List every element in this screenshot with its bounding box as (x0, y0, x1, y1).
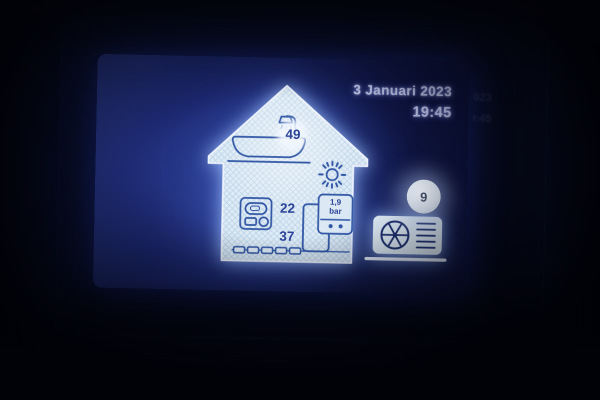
photo-of-device: 3 Januari 2023 19:45 49 22 37 1,9 bar 9 … (0, 0, 600, 400)
flow-temperature: 37 (272, 228, 302, 244)
heat-pump-icon (364, 215, 447, 261)
pressure-unit: bar (318, 206, 352, 216)
screen-date: 3 Januari 2023 (353, 82, 452, 99)
date-reflection: 3 Januari 2023 (474, 92, 492, 107)
outdoor-temperature: 9 (420, 189, 428, 204)
screen-time: 19:45 (412, 104, 451, 121)
heating-controller-device: 3 Januari 2023 19:45 49 22 37 1,9 bar 9 … (0, 0, 600, 400)
thermostat-screen[interactable]: 3 Januari 2023 19:45 49 22 37 1,9 bar 9 (93, 54, 470, 296)
heat-pump-ground-line (364, 257, 446, 262)
time-reflection: 19:45 (473, 113, 491, 128)
pressure-readout: 1,9 bar (318, 197, 352, 216)
dhw-temperature: 49 (278, 127, 308, 143)
room-temperature: 22 (272, 200, 302, 216)
